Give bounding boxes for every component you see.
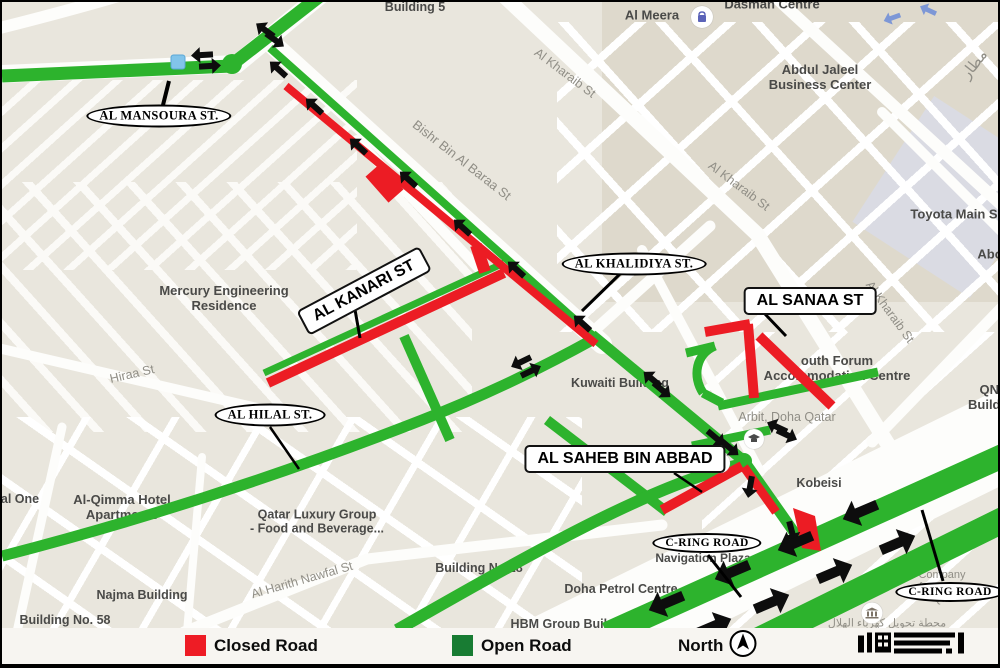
open-road-swatch [452,635,473,656]
north-compass-icon [728,629,758,664]
callout-c-ring-road-1: C-RING ROAD [652,533,761,553]
callout-al-mansoura-st: AL MANSOURA ST. [86,105,231,128]
bank-icon [862,603,883,624]
open-roads [2,2,998,628]
map-area: Building 5 Dasman Centre Al Meera Abdul … [2,2,998,628]
north-label: North [678,636,723,656]
ashghal-logo [858,631,966,662]
callout-al-saheb-bin-abbad: AL SAHEB BIN ABBAD [524,445,725,473]
callout-al-khalidiya-st: AL KHALIDIYA ST. [562,253,707,276]
closed-road-swatch [185,635,206,656]
legend-bar: Closed Road Open Road North [2,628,998,664]
callout-al-sanaa-st: AL SANAA ST [744,287,877,315]
transit-icon [171,55,186,70]
closed-roads [268,86,832,551]
callout-pointer-lines [163,81,943,597]
callout-al-hilal-st: AL HILAL ST. [215,404,326,427]
open-road-label: Open Road [481,636,572,656]
shopping-bag-icon [691,6,713,28]
road-closure-map: Building 5 Dasman Centre Al Meera Abdul … [0,0,1000,668]
traffic-annotation-layer [2,2,998,628]
callout-c-ring-road-2: C-RING ROAD [895,582,998,602]
closed-road-label: Closed Road [214,636,318,656]
school-icon [744,429,764,449]
